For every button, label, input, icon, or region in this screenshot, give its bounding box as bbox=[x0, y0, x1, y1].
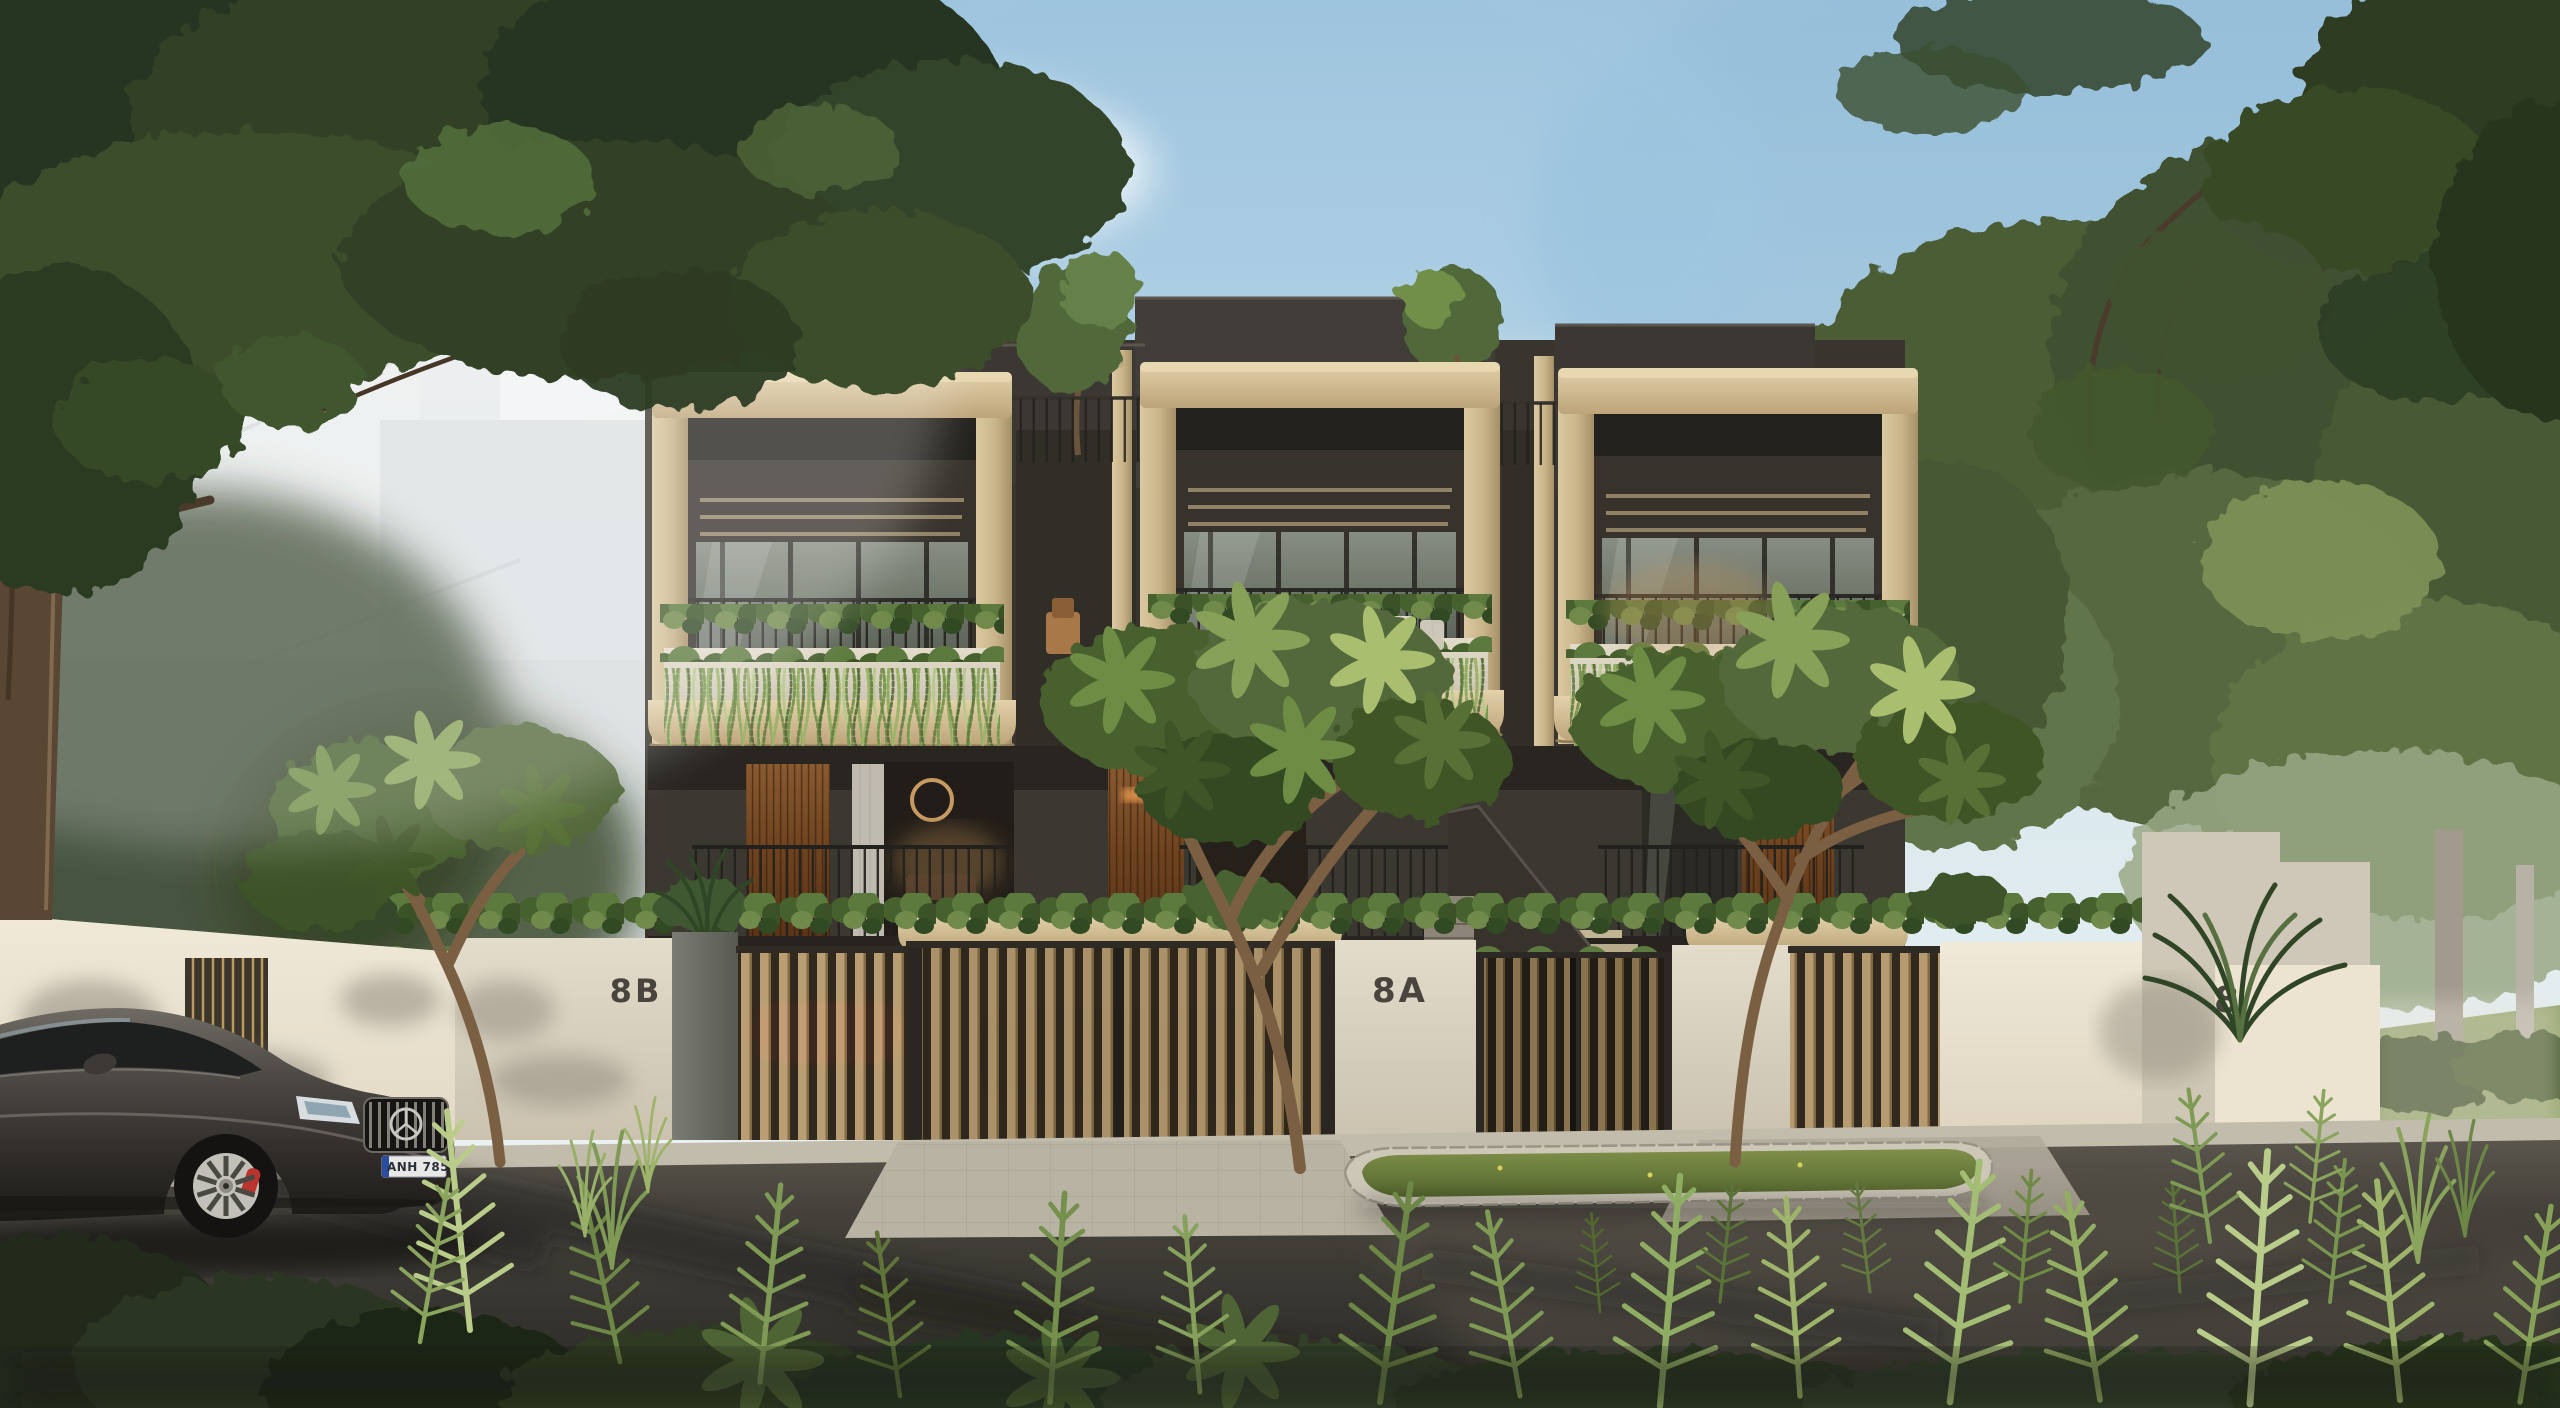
house-number-8b: 8B bbox=[610, 972, 663, 1010]
front-wheel bbox=[174, 1134, 278, 1238]
stone-pillar bbox=[672, 932, 738, 1140]
boundary-wall-8: 8 bbox=[2100, 832, 2380, 1137]
wall-mid-right bbox=[1672, 945, 1790, 1140]
scene-canvas: 8B 8A 8 bbox=[0, 0, 2560, 1408]
pedestrian-gate bbox=[1476, 952, 1672, 1140]
architectural-render-scene: 8B 8A 8 bbox=[0, 0, 2560, 1408]
slat-fence-right bbox=[1788, 946, 1942, 1138]
slat-fence-left bbox=[736, 946, 910, 1140]
wall-8a: 8A bbox=[1335, 940, 1476, 1140]
house-number-8a: 8A bbox=[1372, 971, 1428, 1011]
license-plate-text: ANH 785 bbox=[387, 1160, 449, 1174]
